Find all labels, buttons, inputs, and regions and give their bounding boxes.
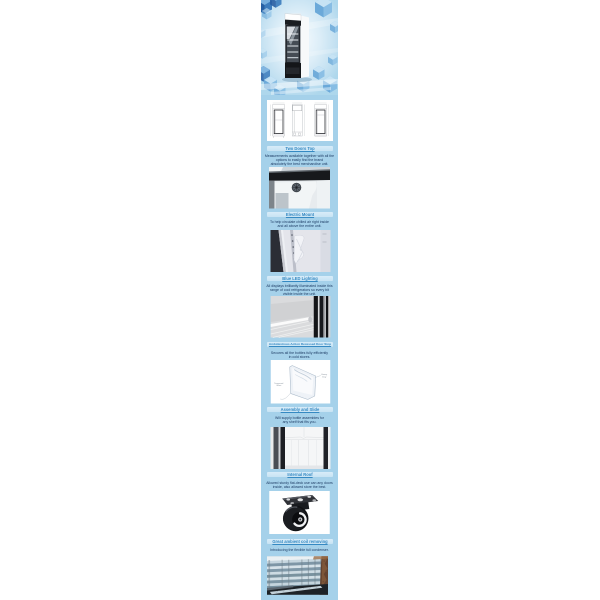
svg-text:Duty: Duty <box>322 375 326 378</box>
svg-text:Glass: Glass <box>276 385 281 387</box>
